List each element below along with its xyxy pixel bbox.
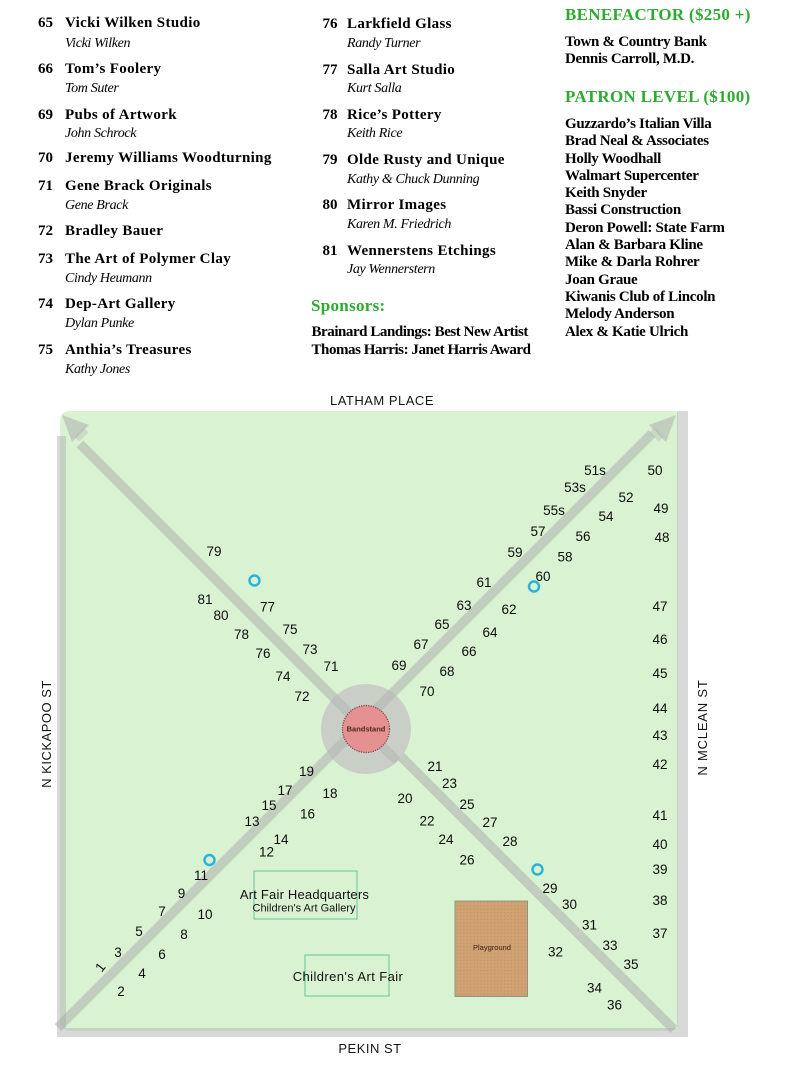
- svg-text:54: 54: [598, 509, 614, 524]
- svg-text:72: 72: [294, 689, 309, 704]
- svg-text:16: 16: [300, 807, 315, 822]
- svg-text:80: 80: [213, 608, 228, 623]
- svg-text:3: 3: [114, 945, 122, 960]
- svg-text:57: 57: [530, 524, 545, 539]
- svg-text:25: 25: [459, 797, 474, 812]
- svg-text:4: 4: [138, 966, 146, 981]
- svg-text:38: 38: [652, 893, 667, 908]
- svg-text:50: 50: [647, 463, 662, 478]
- svg-text:73: 73: [302, 642, 317, 657]
- svg-text:2: 2: [117, 984, 125, 999]
- svg-text:37: 37: [652, 926, 667, 941]
- svg-text:23: 23: [442, 776, 457, 791]
- svg-text:81: 81: [197, 592, 212, 607]
- svg-text:67: 67: [413, 637, 428, 652]
- svg-text:48: 48: [654, 530, 669, 545]
- svg-text:44: 44: [652, 701, 668, 716]
- svg-text:Children's Art Fair: Children's Art Fair: [293, 969, 404, 984]
- svg-text:30: 30: [562, 897, 577, 912]
- svg-text:Playground: Playground: [473, 943, 511, 952]
- svg-text:27: 27: [482, 815, 497, 830]
- svg-text:32: 32: [548, 945, 563, 960]
- svg-text:60: 60: [535, 569, 550, 584]
- svg-text:9: 9: [178, 886, 186, 901]
- svg-text:40: 40: [652, 837, 667, 852]
- svg-text:78: 78: [234, 627, 249, 642]
- svg-text:49: 49: [653, 501, 668, 516]
- svg-text:71: 71: [323, 659, 338, 674]
- svg-text:22: 22: [419, 814, 434, 829]
- svg-text:29: 29: [542, 881, 557, 896]
- svg-text:LATHAM PLACE: LATHAM PLACE: [330, 393, 434, 408]
- svg-text:17: 17: [277, 783, 292, 798]
- svg-text:42: 42: [652, 757, 667, 772]
- svg-text:46: 46: [652, 632, 667, 647]
- svg-text:6: 6: [158, 947, 166, 962]
- svg-text:66: 66: [461, 644, 476, 659]
- svg-text:31: 31: [582, 918, 597, 933]
- svg-text:15: 15: [261, 798, 276, 813]
- svg-text:N KICKAPOO ST: N KICKAPOO ST: [39, 680, 54, 788]
- svg-text:61: 61: [476, 575, 491, 590]
- svg-text:36: 36: [607, 998, 622, 1013]
- svg-text:45: 45: [652, 666, 667, 681]
- svg-text:8: 8: [180, 927, 188, 942]
- svg-text:63: 63: [456, 598, 471, 613]
- svg-text:19: 19: [299, 764, 314, 779]
- svg-text:69: 69: [391, 658, 406, 673]
- svg-text:11: 11: [194, 868, 208, 883]
- svg-text:12: 12: [259, 845, 274, 860]
- svg-text:PEKIN ST: PEKIN ST: [338, 1041, 401, 1056]
- svg-text:43: 43: [652, 728, 667, 743]
- svg-text:20: 20: [397, 791, 412, 806]
- svg-text:79: 79: [206, 544, 221, 559]
- svg-text:47: 47: [652, 599, 667, 614]
- svg-text:55s: 55s: [543, 503, 565, 518]
- svg-text:58: 58: [557, 550, 572, 565]
- svg-text:68: 68: [439, 664, 454, 679]
- svg-text:70: 70: [419, 684, 434, 699]
- svg-text:33: 33: [602, 938, 617, 953]
- svg-text:Children's Art Gallery: Children's Art Gallery: [253, 903, 356, 915]
- svg-text:26: 26: [459, 853, 474, 868]
- svg-text:76: 76: [255, 646, 270, 661]
- svg-text:13: 13: [244, 814, 259, 829]
- svg-text:N MCLEAN ST: N MCLEAN ST: [695, 679, 710, 775]
- svg-text:14: 14: [273, 832, 289, 847]
- svg-text:34: 34: [587, 981, 603, 996]
- svg-text:41: 41: [652, 808, 667, 823]
- svg-text:53s: 53s: [564, 480, 586, 495]
- svg-text:59: 59: [507, 545, 522, 560]
- svg-text:35: 35: [623, 957, 638, 972]
- svg-text:Art Fair Headquarters: Art Fair Headquarters: [240, 887, 369, 902]
- svg-text:10: 10: [197, 907, 212, 922]
- svg-text:Bandstand: Bandstand: [347, 725, 386, 734]
- svg-text:62: 62: [501, 602, 516, 617]
- svg-text:64: 64: [482, 625, 498, 640]
- svg-text:21: 21: [427, 759, 442, 774]
- svg-text:28: 28: [502, 834, 517, 849]
- svg-text:77: 77: [260, 600, 275, 615]
- svg-text:7: 7: [158, 904, 166, 919]
- svg-text:52: 52: [618, 490, 633, 505]
- svg-text:18: 18: [322, 786, 337, 801]
- svg-text:74: 74: [275, 669, 291, 684]
- svg-text:75: 75: [282, 622, 297, 637]
- svg-text:56: 56: [575, 529, 590, 544]
- svg-text:39: 39: [652, 862, 667, 877]
- svg-text:65: 65: [434, 617, 449, 632]
- svg-text:51s: 51s: [584, 463, 606, 478]
- svg-text:5: 5: [135, 924, 143, 939]
- svg-text:24: 24: [438, 832, 454, 847]
